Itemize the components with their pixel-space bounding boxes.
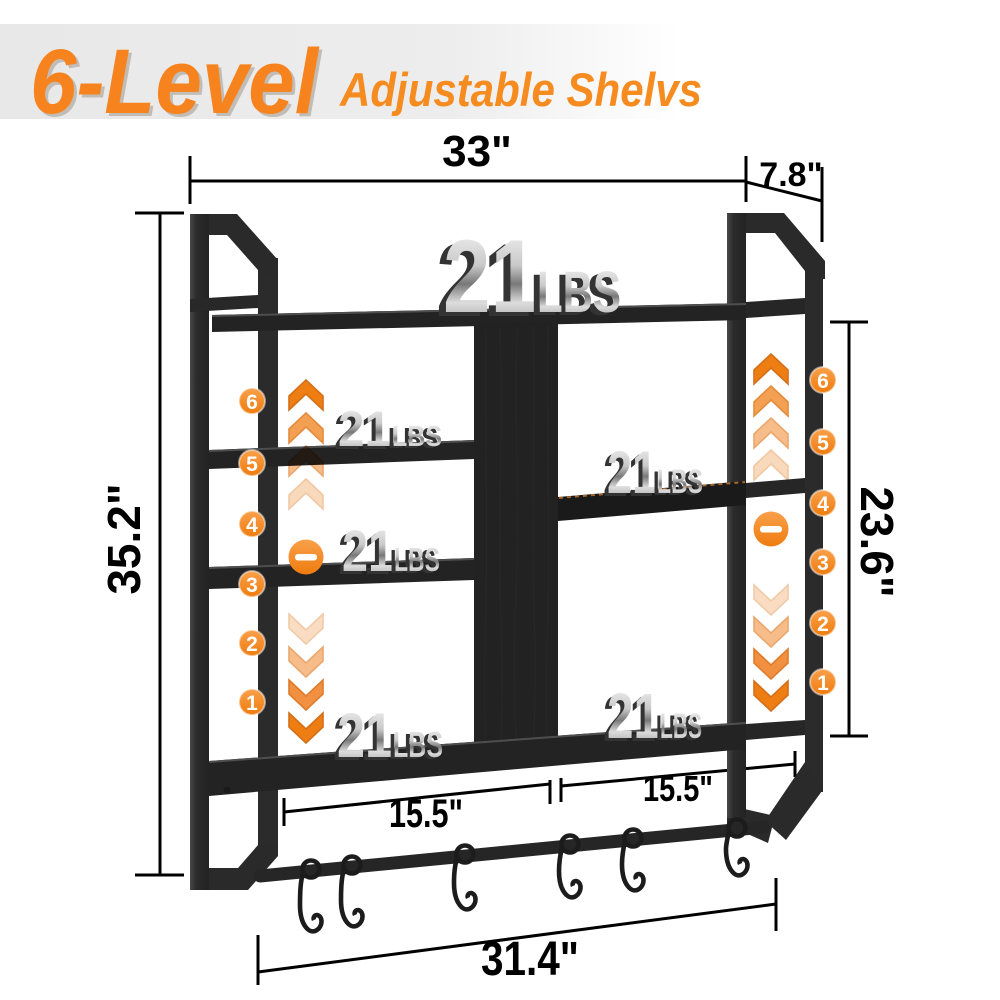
svg-text:21: 21 [607,680,660,752]
svg-text:23.6": 23.6" [851,486,903,597]
svg-text:5: 5 [246,453,258,476]
svg-text:35.2": 35.2" [98,483,150,594]
svg-text:4: 4 [246,514,258,537]
svg-text:3: 3 [817,552,829,575]
svg-text:21: 21 [607,439,657,506]
svg-text:21: 21 [443,219,538,335]
svg-text:6: 6 [246,391,258,414]
svg-text:2: 2 [817,613,829,636]
svg-text:LBS: LBS [537,260,621,325]
svg-text:4: 4 [817,493,829,516]
svg-text:LBS: LBS [394,541,440,578]
svg-text:LBS: LBS [393,724,443,765]
svg-text:2: 2 [246,633,258,656]
svg-text:15.5": 15.5" [389,792,463,836]
svg-text:LBS: LBS [392,421,442,453]
svg-text:LBS: LBS [660,707,702,746]
svg-text:LBS: LBS [657,463,703,501]
svg-text:5: 5 [817,432,829,455]
svg-text:21: 21 [342,519,394,584]
svg-text:6-Level: 6-Level [30,31,320,133]
svg-text:15.5": 15.5" [643,768,713,809]
svg-text:6: 6 [817,370,829,393]
svg-text:1: 1 [246,692,258,715]
svg-text:1: 1 [817,672,829,695]
svg-text:21: 21 [338,401,391,457]
svg-text:31.4": 31.4" [481,933,579,986]
svg-text:3: 3 [246,574,258,597]
svg-text:33": 33" [442,127,512,176]
svg-text:Adjustable Shelvs: Adjustable Shelvs [339,63,702,116]
svg-text:7.8": 7.8" [759,156,822,194]
svg-text:21: 21 [337,701,393,771]
